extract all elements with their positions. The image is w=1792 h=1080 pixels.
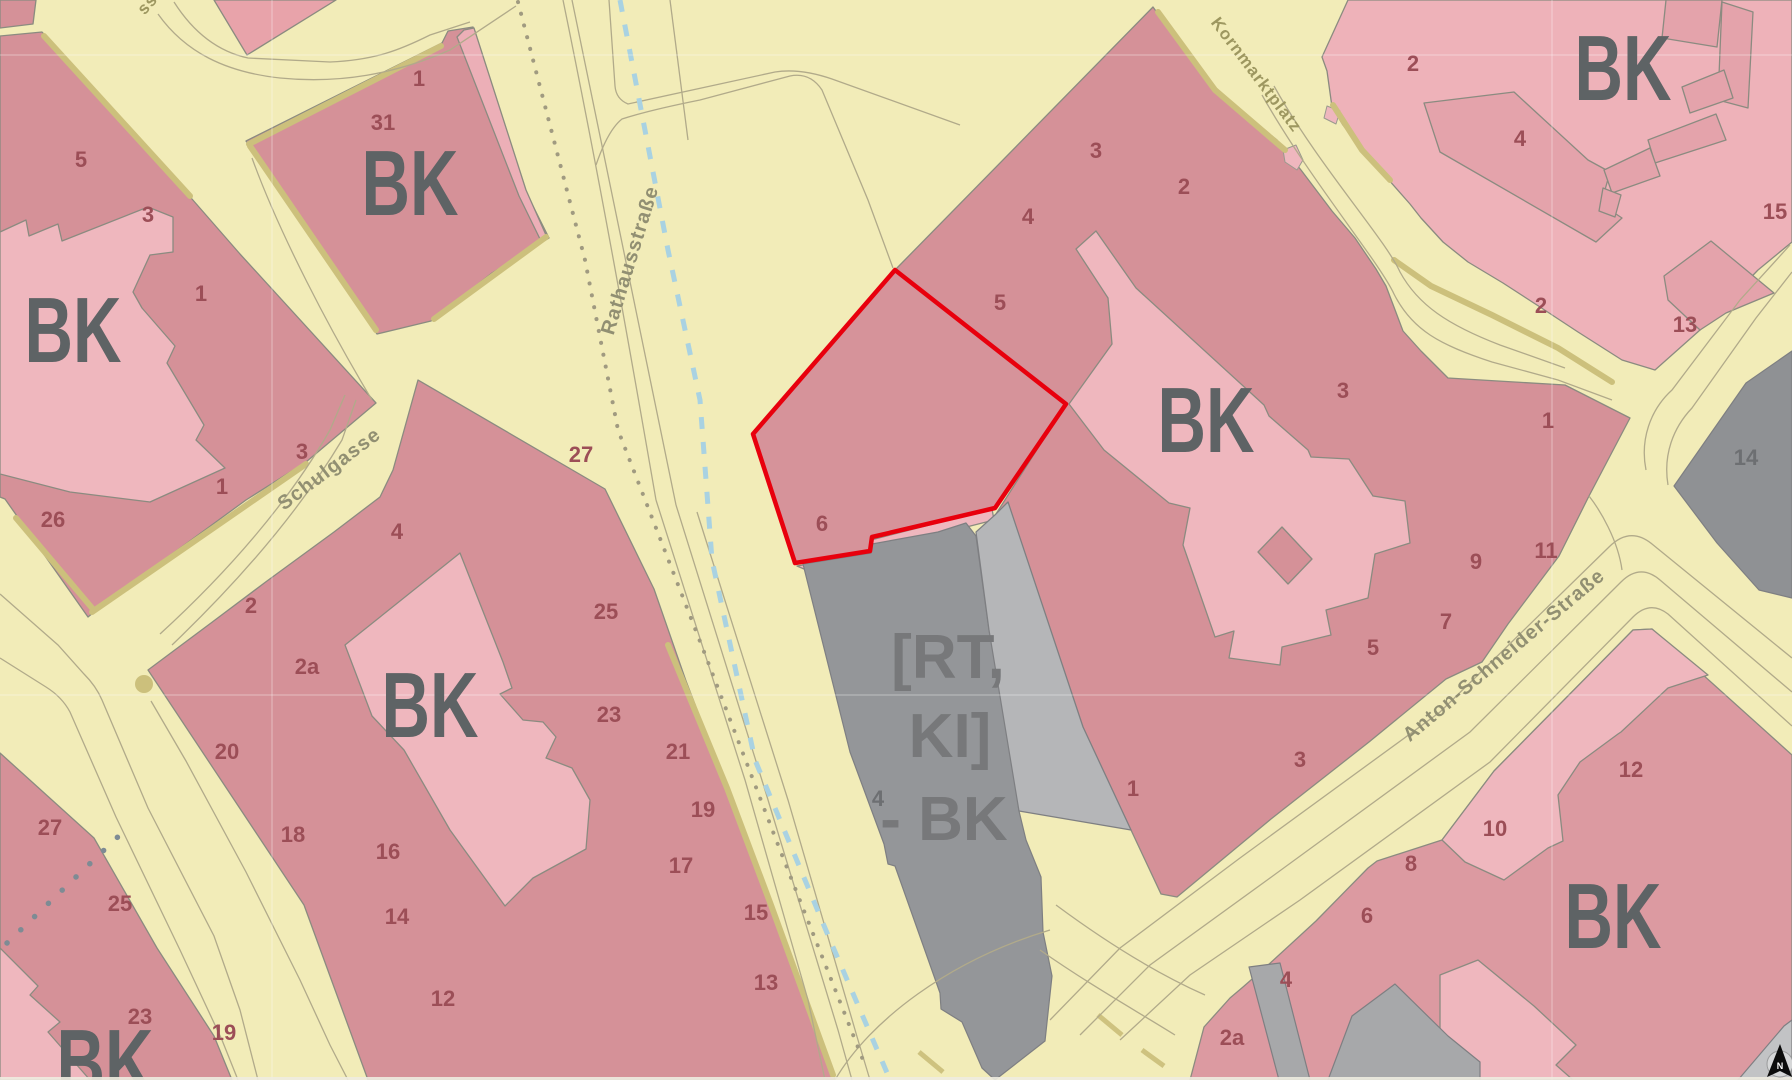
svg-text:14: 14 (1734, 445, 1759, 470)
svg-text:13: 13 (754, 970, 778, 995)
svg-text:26: 26 (41, 507, 65, 532)
svg-text:12: 12 (1619, 757, 1643, 782)
svg-text:[RT,: [RT, (891, 623, 1005, 692)
svg-text:16: 16 (376, 839, 400, 864)
svg-text:6: 6 (816, 511, 828, 536)
svg-text:5: 5 (1367, 635, 1379, 660)
svg-text:9: 9 (1470, 549, 1482, 574)
svg-text:25: 25 (594, 599, 618, 624)
svg-text:10: 10 (1483, 816, 1507, 841)
svg-text:27: 27 (569, 442, 593, 467)
svg-text:1: 1 (216, 474, 228, 499)
svg-text:2: 2 (1178, 174, 1190, 199)
svg-text:8: 8 (1405, 851, 1417, 876)
svg-text:BK: BK (25, 278, 122, 382)
svg-text:6: 6 (1361, 903, 1373, 928)
svg-text:20: 20 (215, 739, 239, 764)
svg-text:1: 1 (413, 66, 425, 91)
svg-text:15: 15 (1763, 199, 1787, 224)
svg-text:4: 4 (1280, 967, 1293, 992)
svg-text:23: 23 (128, 1004, 152, 1029)
svg-text:4: 4 (1514, 126, 1527, 151)
svg-text:14: 14 (385, 904, 410, 929)
svg-text:31: 31 (371, 110, 395, 135)
svg-text:BK: BK (362, 131, 459, 235)
svg-text:18: 18 (281, 822, 305, 847)
svg-text:11: 11 (1534, 538, 1557, 563)
svg-text:BK: BK (382, 653, 479, 757)
svg-text:4: 4 (391, 519, 404, 544)
svg-text:1: 1 (1127, 776, 1139, 801)
svg-text:3: 3 (1090, 138, 1102, 163)
svg-text:3: 3 (296, 439, 308, 464)
svg-text:4: 4 (1022, 204, 1035, 229)
svg-text:17: 17 (669, 853, 693, 878)
svg-text:2a: 2a (295, 654, 320, 679)
svg-text:KI]: KI] (909, 702, 992, 771)
svg-text:BK: BK (1565, 864, 1662, 968)
svg-text:12: 12 (431, 986, 455, 1011)
svg-text:BK: BK (1575, 16, 1672, 120)
svg-text:3: 3 (1337, 378, 1349, 403)
svg-text:BK: BK (1158, 368, 1255, 472)
svg-text:1: 1 (1542, 408, 1554, 433)
svg-text:4: 4 (872, 786, 885, 811)
svg-text:- BK: - BK (880, 785, 1008, 854)
svg-text:3: 3 (1294, 747, 1306, 772)
svg-text:5: 5 (994, 290, 1006, 315)
svg-text:2: 2 (1407, 51, 1419, 76)
svg-text:23: 23 (597, 702, 621, 727)
svg-text:1: 1 (195, 281, 207, 306)
svg-text:3: 3 (142, 202, 154, 227)
svg-text:2a: 2a (1220, 1025, 1245, 1050)
svg-text:2: 2 (245, 593, 257, 618)
svg-text:13: 13 (1673, 312, 1697, 337)
svg-text:19: 19 (691, 797, 715, 822)
svg-text:19: 19 (212, 1020, 236, 1045)
svg-text:2: 2 (1535, 293, 1547, 318)
svg-text:N: N (1777, 1061, 1784, 1071)
svg-text:7: 7 (1440, 609, 1452, 634)
svg-text:5: 5 (75, 147, 87, 172)
svg-text:27: 27 (38, 815, 62, 840)
svg-text:25: 25 (108, 891, 132, 916)
svg-text:15: 15 (744, 900, 768, 925)
svg-text:21: 21 (666, 739, 690, 764)
